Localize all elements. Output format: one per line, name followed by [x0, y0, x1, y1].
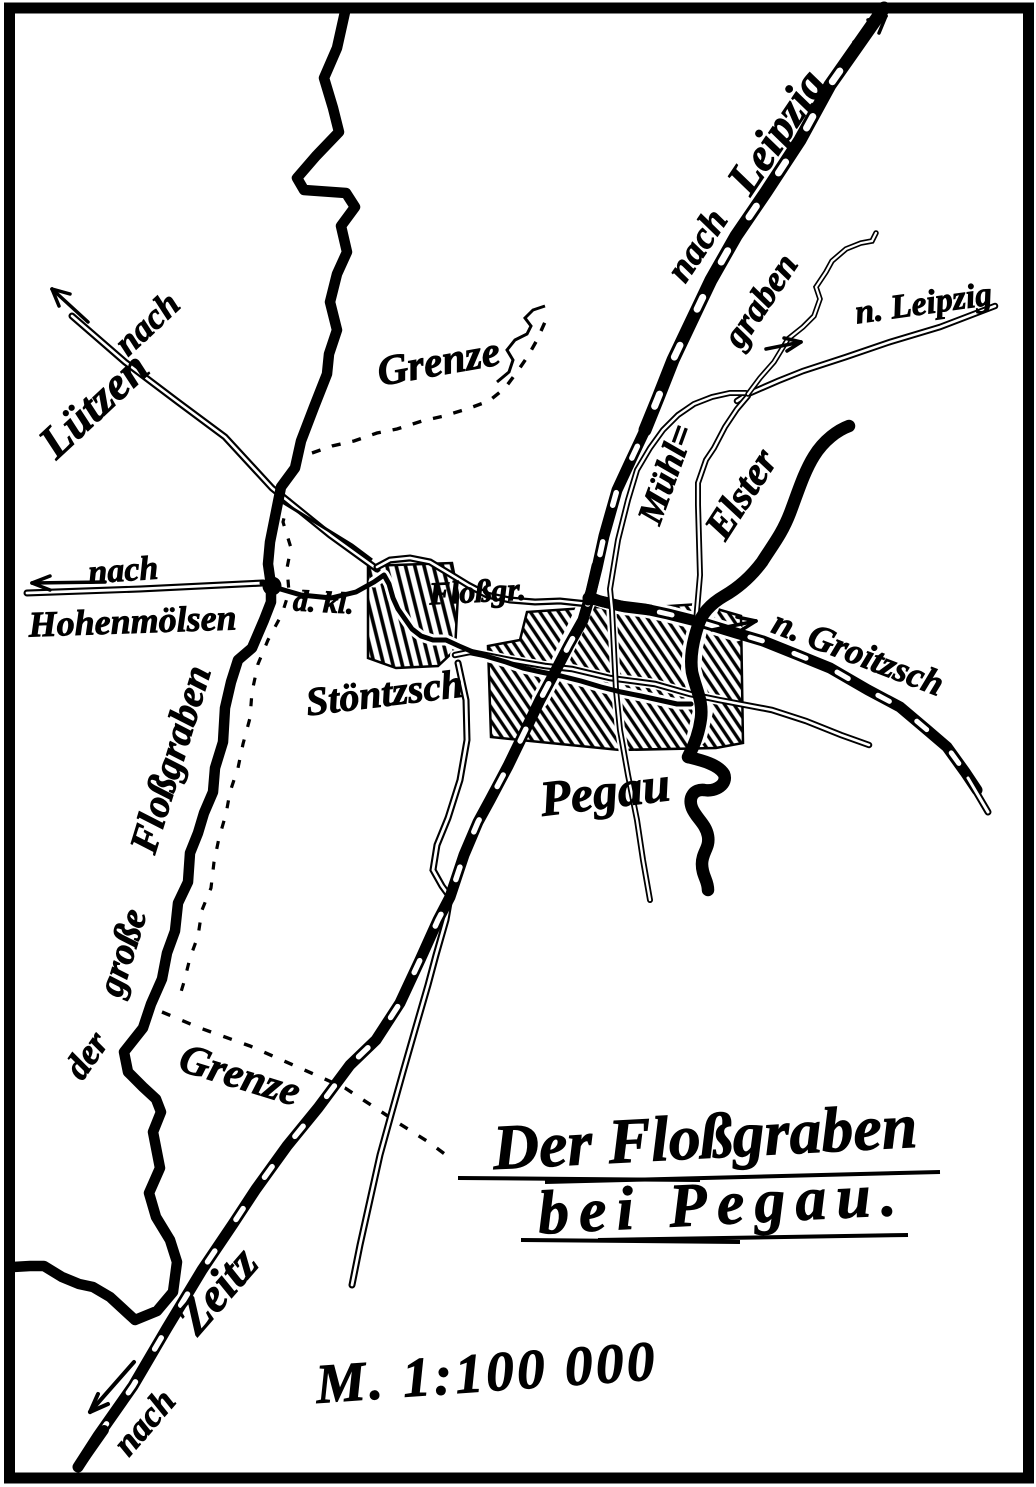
svg-text:d. kl.: d. kl.: [292, 584, 354, 620]
svg-text:Hohenmölsen: Hohenmölsen: [27, 597, 237, 644]
svg-text:nach: nach: [87, 550, 159, 592]
svg-text:Floßgr.: Floßgr.: [427, 571, 527, 612]
